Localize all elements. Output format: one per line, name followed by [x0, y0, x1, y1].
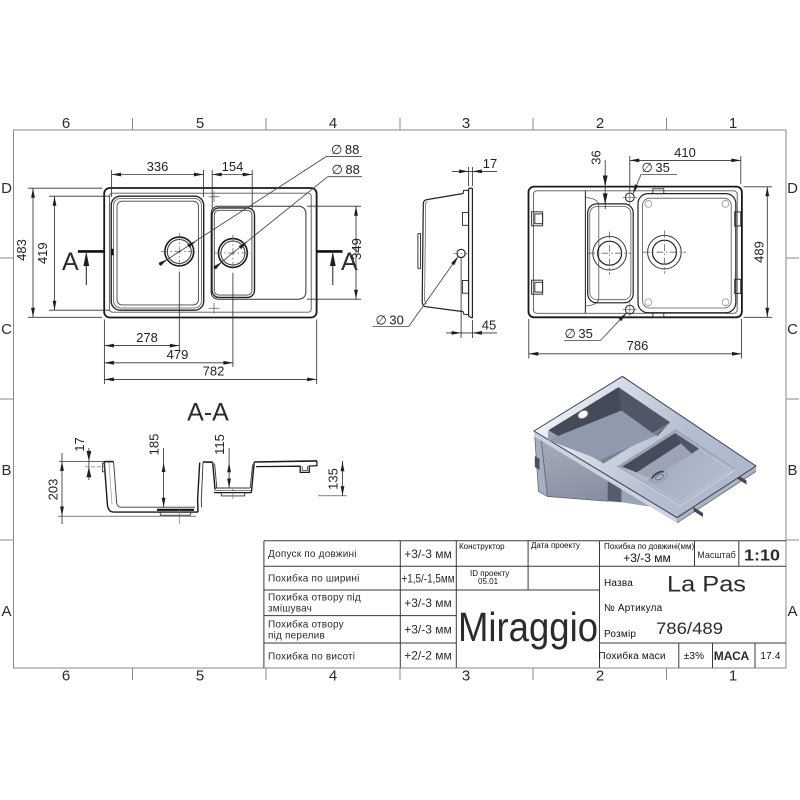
- svg-text:489: 489: [752, 241, 767, 263]
- svg-text:05.01: 05.01: [478, 577, 499, 586]
- svg-text:1:10: 1:10: [744, 548, 780, 565]
- svg-text:∅ 88: ∅ 88: [331, 142, 359, 157]
- svg-text:36: 36: [589, 150, 604, 164]
- svg-text:∅ 35: ∅ 35: [642, 160, 670, 175]
- svg-text:A: A: [62, 248, 79, 276]
- svg-text:∅ 30: ∅ 30: [376, 312, 404, 327]
- svg-text:A-A: A-A: [187, 399, 229, 427]
- svg-text:C: C: [787, 321, 798, 338]
- svg-text:483: 483: [14, 239, 29, 261]
- svg-text:+1,5/-1,5мм: +1,5/-1,5мм: [402, 572, 455, 586]
- svg-text:278: 278: [136, 330, 158, 345]
- svg-text:+3/-3 мм: +3/-3 мм: [623, 551, 671, 565]
- svg-text:410: 410: [674, 145, 696, 160]
- svg-text:+2/-2 мм: +2/-2 мм: [404, 649, 452, 663]
- svg-text:+3/-3 мм: +3/-3 мм: [404, 547, 452, 561]
- svg-text:Дата проекту: Дата проекту: [531, 541, 580, 550]
- svg-text:5: 5: [196, 115, 204, 132]
- svg-text:185: 185: [147, 434, 162, 456]
- svg-text:786: 786: [627, 338, 649, 353]
- svg-text:17: 17: [72, 437, 87, 451]
- svg-text:135: 135: [326, 468, 341, 490]
- svg-text:Похибка по довжині(мм): Похибка по довжині(мм): [604, 542, 694, 551]
- svg-text:C: C: [1, 321, 12, 338]
- svg-text:B: B: [787, 462, 797, 479]
- svg-text:Похибка по висоті: Похибка по висоті: [268, 651, 355, 663]
- svg-text:Назва: Назва: [604, 578, 633, 589]
- svg-text:5: 5: [196, 668, 204, 685]
- svg-text:A: A: [341, 248, 358, 276]
- svg-text:1: 1: [729, 115, 737, 132]
- svg-text:6: 6: [62, 668, 70, 685]
- svg-text:3: 3: [462, 115, 470, 132]
- svg-text:∅ 88: ∅ 88: [332, 162, 360, 177]
- svg-text:4: 4: [329, 115, 337, 132]
- svg-text:+3/-3 мм: +3/-3 мм: [404, 623, 452, 637]
- svg-text:D: D: [787, 180, 798, 197]
- svg-text:змішувач: змішувач: [268, 604, 312, 615]
- svg-text:4: 4: [329, 668, 337, 685]
- svg-text:La Pas: La Pas: [667, 572, 746, 597]
- svg-text:B: B: [1, 462, 11, 479]
- svg-text:782: 782: [203, 364, 225, 379]
- svg-text:17: 17: [483, 156, 497, 171]
- svg-text:2: 2: [596, 115, 604, 132]
- svg-text:A: A: [787, 603, 797, 620]
- svg-text:Похибка маси: Похибка маси: [598, 650, 665, 662]
- svg-text:479: 479: [167, 347, 189, 362]
- svg-text:+3/-3 мм: +3/-3 мм: [404, 596, 452, 610]
- svg-text:6: 6: [62, 115, 70, 132]
- svg-text:419: 419: [35, 242, 50, 264]
- svg-text:№ Артикула: № Артикула: [604, 603, 663, 614]
- svg-text:1: 1: [729, 668, 737, 685]
- svg-text:2: 2: [596, 668, 604, 685]
- svg-text:336: 336: [147, 159, 169, 174]
- svg-text:3: 3: [462, 668, 470, 685]
- svg-text:МАСА: МАСА: [714, 649, 750, 663]
- svg-text:154: 154: [222, 159, 244, 174]
- svg-text:115: 115: [212, 434, 227, 455]
- svg-text:786/489: 786/489: [656, 619, 723, 638]
- svg-text:Допуск по довжині: Допуск по довжині: [268, 549, 357, 560]
- svg-text:±3%: ±3%: [684, 651, 705, 662]
- svg-text:45: 45: [482, 318, 496, 333]
- svg-text:203: 203: [46, 479, 61, 501]
- svg-text:під перелив: під перелив: [268, 631, 325, 642]
- svg-text:D: D: [1, 180, 12, 197]
- svg-text:Miraggio: Miraggio: [458, 604, 598, 650]
- svg-text:Похибка отвору під: Похибка отвору під: [268, 592, 361, 604]
- svg-text:Похибка отвору: Похибка отвору: [268, 619, 344, 631]
- svg-text:17.4: 17.4: [760, 651, 781, 662]
- svg-text:Розмір: Розмір: [604, 629, 636, 640]
- svg-text:∅ 35: ∅ 35: [565, 326, 593, 341]
- svg-text:Масштаб: Масштаб: [697, 550, 736, 560]
- svg-text:Конструктор: Конструктор: [459, 542, 505, 551]
- svg-text:Похибка по ширині: Похибка по ширині: [268, 573, 360, 585]
- svg-text:A: A: [1, 603, 11, 620]
